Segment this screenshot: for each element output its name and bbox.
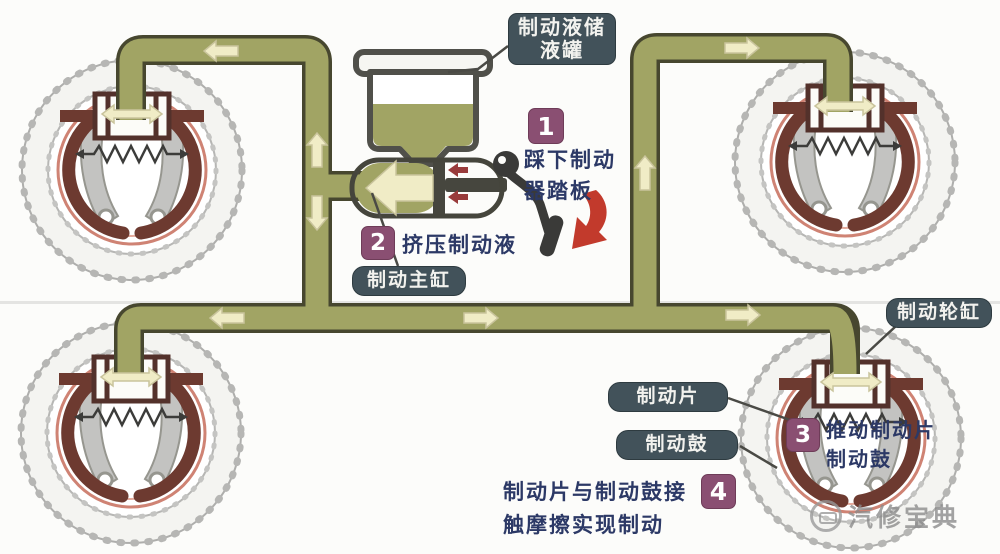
pushrod — [445, 178, 507, 192]
step-3-badge: 3 — [786, 418, 820, 452]
watermark-text: 汽修宝典 — [848, 498, 960, 534]
watermark: 汽修宝典 — [810, 498, 960, 534]
label-wheel-cylinder: 制动轮缸 — [886, 298, 992, 328]
label-brake-drum: 制动鼓 — [616, 430, 738, 460]
label-fluid-reservoir-line2: 液罐 — [540, 38, 584, 62]
step-3-text: 推动制动片 制动鼓 — [826, 416, 936, 474]
watermark-logo-icon — [810, 500, 842, 532]
piston — [433, 162, 445, 214]
master-cylinder — [352, 160, 507, 216]
reservoir-fluid — [373, 104, 473, 161]
step-2-text: 挤压制动液 — [402, 229, 517, 259]
piston-arrow-1-icon — [448, 163, 468, 177]
brake-system-diagram: 制动液储 液罐 1 踩下制动 器踏板 2 挤压制动液 制动主缸 制动轮缸 制动片… — [0, 0, 1000, 554]
label-fluid-reservoir: 制动液储 液罐 — [508, 13, 616, 65]
label-fluid-reservoir-line1: 制动液储 — [518, 15, 606, 39]
step-4-text: 制动片与制动鼓接 触摩擦实现制动 — [503, 476, 687, 542]
step-2-badge: 2 — [361, 226, 395, 260]
label-brake-pad: 制动片 — [608, 382, 728, 412]
step-1-badge: 1 — [528, 108, 564, 144]
label-master-cylinder: 制动主缸 — [352, 266, 466, 296]
step-4-badge: 4 — [701, 474, 736, 509]
step-1-text: 踩下制动 器踏板 — [524, 145, 616, 207]
piston-arrow-2-icon — [448, 190, 468, 204]
